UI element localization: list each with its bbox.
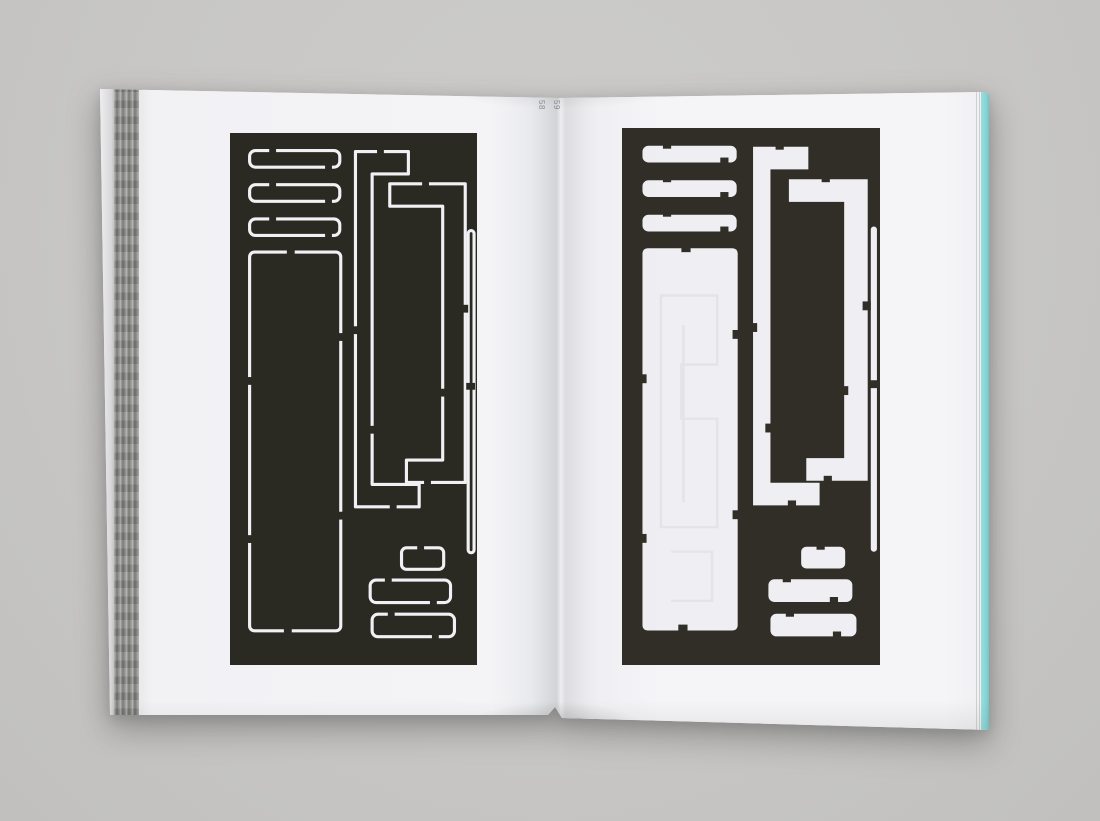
book-shadow-wrap: 58 59 bbox=[0, 0, 1100, 821]
right-page-number: 59 bbox=[552, 100, 560, 110]
left-page-stack-edge bbox=[113, 85, 142, 732]
back-cover-edge bbox=[100, 85, 113, 732]
left-page-number: 58 bbox=[537, 100, 545, 110]
left-page bbox=[139, 85, 559, 732]
right-page-block-edge bbox=[974, 85, 981, 732]
photo-background: 58 59 bbox=[0, 0, 1100, 821]
cyan-fore-edge bbox=[981, 85, 989, 732]
left-die-cut-artwork bbox=[230, 133, 477, 665]
right-die-cut-artwork bbox=[622, 128, 880, 665]
right-page bbox=[559, 85, 974, 732]
open-book: 58 59 bbox=[100, 85, 989, 732]
